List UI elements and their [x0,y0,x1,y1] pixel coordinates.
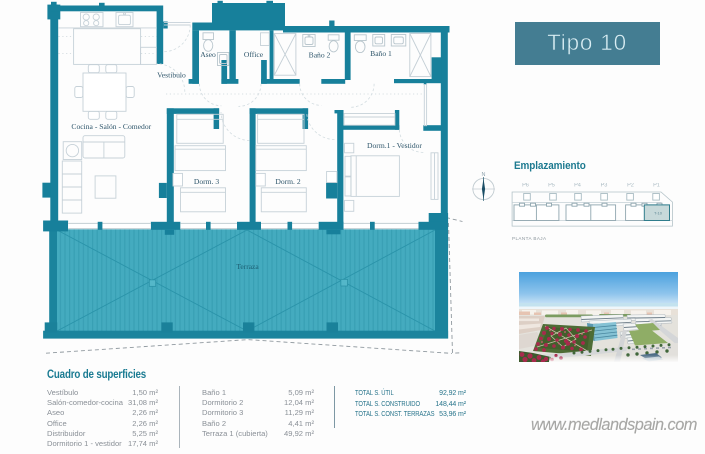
svg-text:P1: P1 [653,183,660,189]
svg-text:P3: P3 [601,183,608,189]
svg-text:Baño 2: Baño 2 [309,51,331,60]
svg-text:Office: Office [244,50,264,59]
svg-text:Cocina - Salón - Comedor: Cocina - Salón - Comedor [71,122,151,131]
svg-text:Dorm. 2: Dorm. 2 [275,177,301,186]
svg-text:P5: P5 [548,183,555,189]
svg-text:Vestíbulo: Vestíbulo [157,71,186,80]
svg-text:T-10: T-10 [654,211,663,216]
svg-text:Terraza: Terraza [236,262,259,271]
svg-text:Dorm. 3: Dorm. 3 [194,177,220,186]
svg-text:P2: P2 [627,183,634,189]
svg-text:Dorm.1 - Vestidor: Dorm.1 - Vestidor [367,141,422,150]
svg-text:P6: P6 [522,183,529,189]
svg-text:P4: P4 [574,183,581,189]
svg-text:Baño 1: Baño 1 [370,49,392,58]
svg-text:Aseo: Aseo [200,50,216,59]
